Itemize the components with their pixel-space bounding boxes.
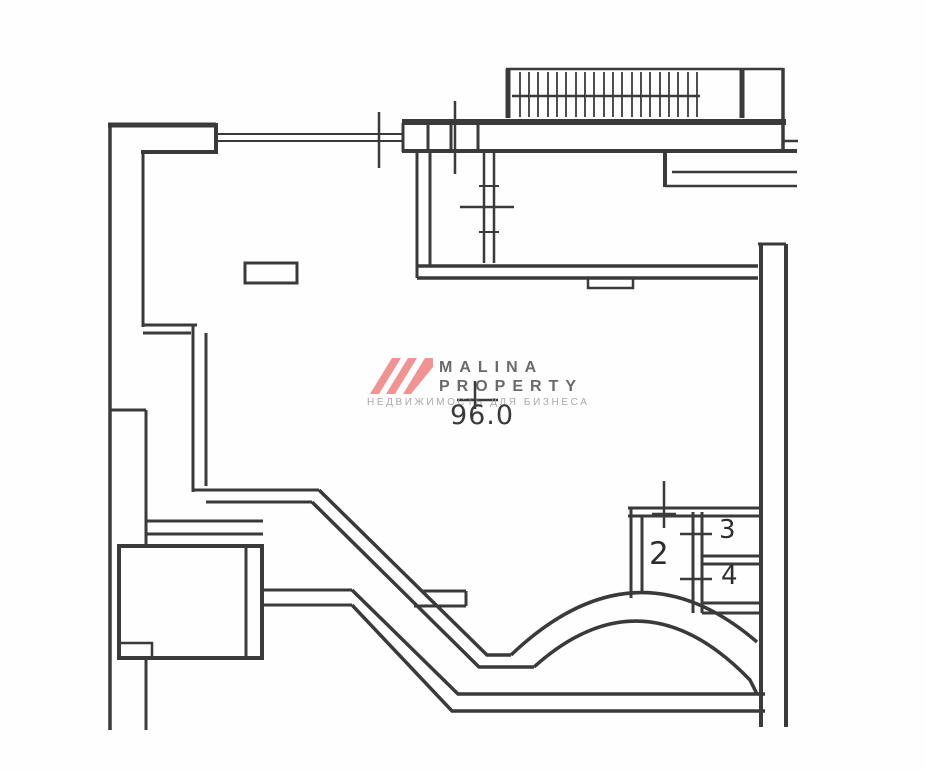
watermark-brand-line1: MALINA	[439, 358, 543, 377]
east-wall	[758, 244, 786, 727]
interior-zigzag-wall	[143, 325, 319, 502]
room-4-label: 4	[721, 561, 738, 591]
area-label: 96.0	[447, 400, 517, 431]
arched-wall	[511, 593, 757, 694]
west-partition	[417, 152, 430, 266]
window	[216, 112, 402, 168]
column-fixture	[245, 263, 297, 283]
room-3-label: 3	[719, 515, 736, 545]
diagonal-wall-upper	[312, 490, 534, 667]
mid-partition	[460, 152, 514, 263]
bay-room	[119, 521, 263, 658]
northeast-ledge	[665, 68, 798, 187]
staircase	[506, 69, 783, 118]
interior-south-wall	[417, 266, 758, 288]
floorplan-page: MALINA PROPERTY НЕДВИЖИМОСТЬ ДЛЯ БИЗНЕСА…	[0, 0, 926, 772]
stair-treads	[520, 72, 697, 117]
watermark-brand-line2: PROPERTY	[439, 377, 583, 396]
north-wall	[402, 101, 797, 174]
room-2-label: 2	[649, 536, 669, 572]
malina-logo-icon	[366, 353, 436, 397]
exterior-west-wall	[108, 123, 217, 730]
